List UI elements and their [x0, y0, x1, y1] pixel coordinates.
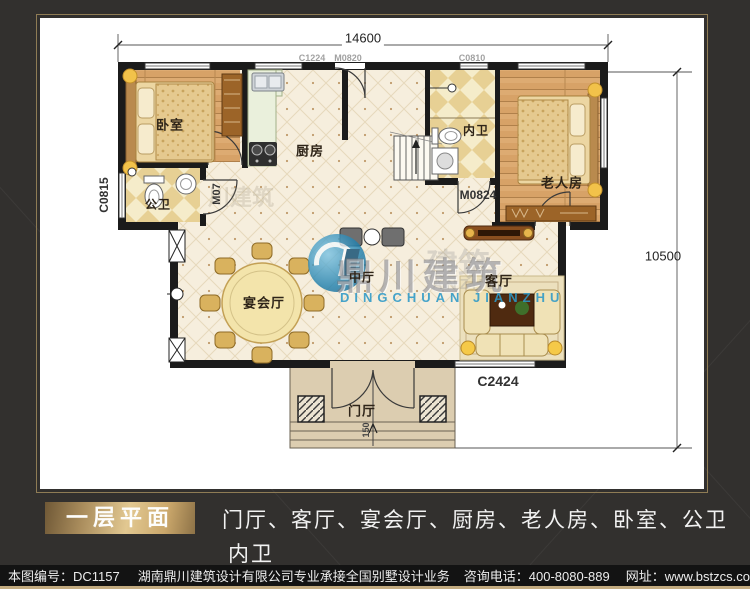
- room-label-public-bath: 公卫: [145, 196, 171, 213]
- phone-line: 咨询电话：400-8080-889: [464, 566, 610, 585]
- window-top-elder: [518, 63, 585, 69]
- room-label-banquet-hall: 宴会厅: [243, 293, 285, 312]
- floor-lamp: [461, 341, 475, 355]
- bedside-lamp: [123, 69, 137, 83]
- window-right-elder: [601, 98, 607, 168]
- room-label-kitchen: 厨房: [296, 141, 324, 160]
- top-opening-label: C0810: [459, 53, 486, 63]
- wardrobe: [222, 74, 242, 136]
- room-list-line1: 门厅、客厅、宴会厅、厨房、老人房、卧室、公卫: [222, 504, 728, 534]
- blanket: [518, 100, 568, 180]
- window-bottom-living-C2424: [455, 361, 535, 367]
- floor-title-badge: 一层平面: [45, 502, 195, 534]
- door-code-M0824: M0824: [460, 188, 497, 202]
- room-label-inner-bath: 内卫: [463, 122, 489, 139]
- window-top-kitchen: [255, 63, 302, 69]
- porch-column: [298, 396, 324, 422]
- bedside-lamp: [588, 83, 602, 97]
- door-gap-entry: [330, 361, 415, 368]
- pillow: [570, 104, 585, 136]
- window-top-innerbath: [460, 63, 488, 69]
- window-code-C0815: C0815: [97, 177, 111, 212]
- floor-lamp: [548, 341, 562, 355]
- pillow: [138, 124, 154, 154]
- door-code-M07: M07: [211, 183, 223, 204]
- top-opening-label: C1224: [299, 53, 326, 63]
- window-left-bath-C0815: [119, 173, 125, 218]
- room-label-bedroom: 卧室: [156, 115, 184, 134]
- window-code-C2424: C2424: [477, 373, 518, 389]
- top-opening-label: M0820: [334, 53, 362, 63]
- pillow: [138, 88, 154, 118]
- floorplan-panel: 川建筑 建筑 ANZHU 鼎川建筑 DINGCHUAN JIANZHU 1460…: [40, 18, 704, 489]
- pillow: [570, 144, 585, 176]
- sofa: [476, 334, 548, 356]
- room-label-center-hall: 中厅: [349, 269, 375, 286]
- dimension-width: 14600: [342, 31, 384, 46]
- window-banquet-left: [167, 230, 185, 362]
- drawing-sheet: 川建筑 建筑 ANZHU 鼎川建筑 DINGCHUAN JIANZHU 1460…: [0, 0, 750, 589]
- window-top-bedroom: [145, 63, 210, 69]
- watermark-brand-latin: DINGCHUAN JIANZHU: [340, 290, 564, 305]
- porch-column: [420, 396, 446, 422]
- dimension-height: 10500: [642, 249, 684, 264]
- step-dimension: 150: [361, 422, 371, 437]
- room-label-living-room: 客厅: [485, 271, 513, 290]
- room-label-elder-room: 老人房: [541, 173, 583, 192]
- bedside-lamp: [588, 183, 602, 197]
- footer-bar: 本图编号：DC1157 湖南鼎川建筑设计有限公司专业承接全国别墅设计业务 咨询电…: [0, 565, 750, 589]
- room-label-foyer: 门厅: [348, 401, 376, 420]
- drawing-number: 本图编号：DC1157: [8, 566, 120, 585]
- room-list-line2: 内卫: [228, 538, 274, 568]
- company-line: 湖南鼎川建筑设计有限公司专业承接全国别墅设计业务: [138, 566, 450, 585]
- website-line: 网址：www.bstzcs.com: [626, 566, 750, 585]
